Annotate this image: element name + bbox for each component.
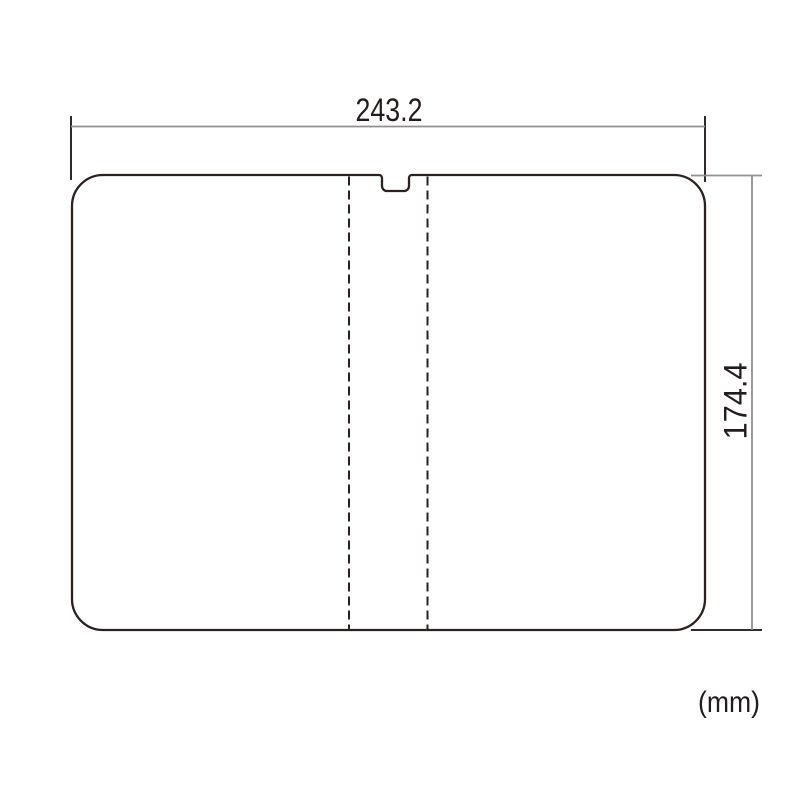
unit-label: (mm): [698, 686, 760, 719]
dimension-drawing: 243.2 174.4 (mm): [0, 0, 800, 800]
height-dimension-label: 174.4: [718, 363, 754, 440]
width-dimension-label: 243.2: [356, 92, 423, 128]
width-dimension: 243.2: [71, 92, 705, 182]
protector-outline: [72, 175, 705, 630]
diagram-page: 243.2 174.4 (mm): [0, 0, 800, 800]
